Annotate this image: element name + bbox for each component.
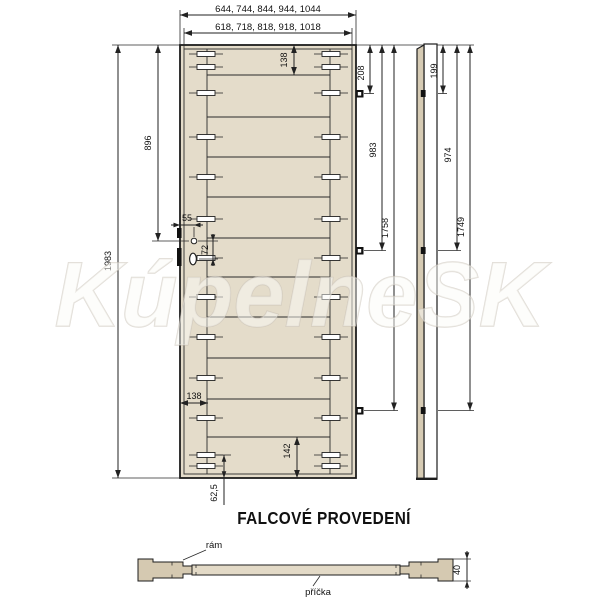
- dim-hinge3-side-label: 1749: [456, 217, 466, 237]
- dimension-hinge1-front: 208: [356, 45, 374, 94]
- dim-bottom-rail-height-label: 142: [282, 443, 292, 458]
- door-technical-drawing: 644, 744, 844, 944, 1044 618, 718, 818, …: [0, 0, 600, 600]
- dim-outer-widths-label: 644, 744, 844, 944, 1044: [215, 4, 321, 15]
- dim-hinge2-side-label: 974: [443, 147, 453, 162]
- section-view: rám příčka 40: [138, 540, 471, 598]
- dim-inner-widths-label: 618, 718, 818, 918, 1018: [215, 22, 321, 33]
- dim-hinge3-front-label: 1758: [380, 218, 390, 238]
- dim-door-thickness-label: 40: [452, 565, 462, 575]
- dim-hinge1-side-label: 199: [429, 63, 439, 78]
- watermark: KúpelneSK: [55, 244, 552, 346]
- dim-lock-height-label: 896: [143, 135, 153, 150]
- section-frame-right: [400, 559, 453, 581]
- dim-hinge1-front-label: 208: [356, 65, 366, 80]
- dim-top-rail-offset-label: 138: [279, 52, 289, 67]
- dim-stile-width-label: 138: [186, 391, 201, 401]
- crossbar-label: příčka: [305, 587, 332, 598]
- section-frame-left: [138, 559, 192, 581]
- crossbar-callout: příčka: [305, 576, 332, 598]
- dimension-door-thickness: 40: [452, 551, 471, 589]
- dim-hinge2-front-label: 983: [368, 142, 378, 157]
- dim-lock-edge-offset-label: 55: [182, 213, 192, 223]
- dim-bottom-dowel-offset-label: 62,5: [209, 484, 219, 502]
- frame-label: rám: [206, 540, 222, 551]
- drawing-title: FALCOVÉ PROVEDENÍ: [237, 508, 411, 528]
- dimension-hinge3-side: 1749: [438, 45, 474, 411]
- section-crossbar-board: [192, 565, 400, 575]
- dimension-hinge3-front: 1758: [364, 45, 398, 411]
- frame-callout: rám: [183, 540, 222, 560]
- key-hole: [191, 238, 197, 244]
